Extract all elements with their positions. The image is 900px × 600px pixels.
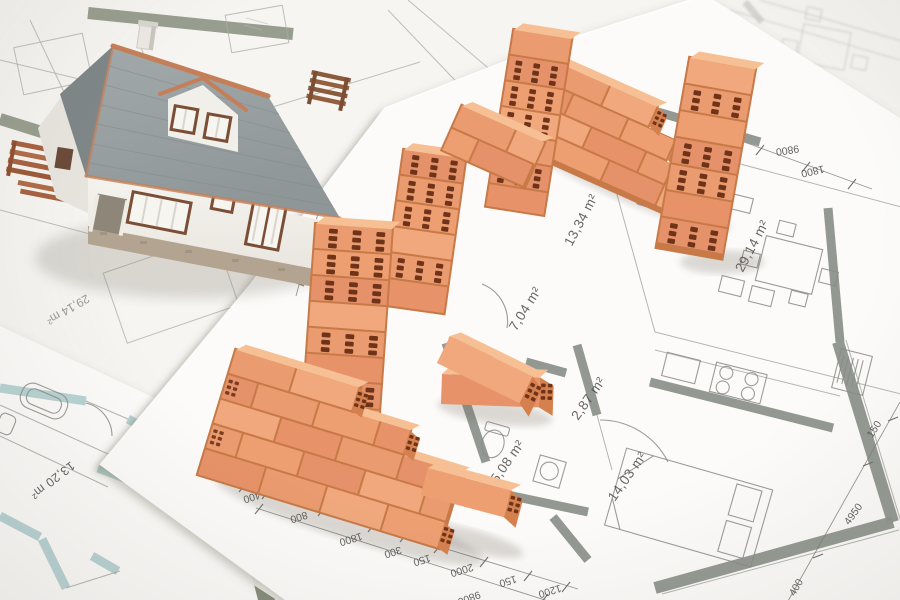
- gable-window: [54, 147, 73, 170]
- dormer-window-2: [202, 112, 232, 143]
- photo-canvas: 13,34 m² 29,14 m² 7,04 m² 2,87 m² 5,08 m…: [0, 0, 900, 600]
- scene-svg: 13,34 m² 29,14 m² 7,04 m² 2,87 m² 5,08 m…: [0, 0, 900, 600]
- dormer-window-1: [169, 104, 199, 135]
